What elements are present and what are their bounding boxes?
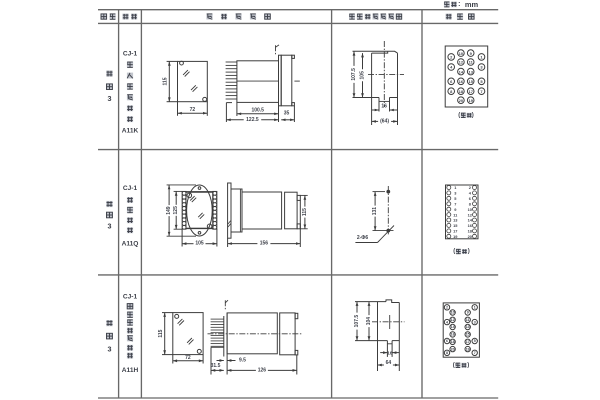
svg-text:A11K: A11K bbox=[122, 127, 139, 134]
svg-text:mm: mm bbox=[465, 0, 479, 9]
svg-text:19: 19 bbox=[466, 347, 470, 351]
svg-text:72: 72 bbox=[190, 107, 196, 113]
svg-text:3: 3 bbox=[108, 94, 112, 103]
svg-text:17: 17 bbox=[453, 229, 457, 234]
svg-text:131: 131 bbox=[372, 207, 378, 216]
svg-text:64: 64 bbox=[386, 360, 392, 366]
svg-text:16: 16 bbox=[459, 79, 464, 84]
svg-text:122.5: 122.5 bbox=[246, 117, 259, 123]
svg-text:(64): (64) bbox=[380, 118, 389, 124]
svg-text:10: 10 bbox=[459, 51, 464, 56]
svg-text::: : bbox=[458, 1, 460, 8]
svg-text:2-Φ6: 2-Φ6 bbox=[357, 235, 369, 241]
svg-text:100.5: 100.5 bbox=[251, 108, 264, 114]
svg-text:19: 19 bbox=[468, 98, 473, 103]
svg-text:20: 20 bbox=[468, 234, 472, 239]
svg-text:1: 1 bbox=[474, 306, 476, 310]
svg-text:20: 20 bbox=[451, 347, 455, 351]
svg-text:): ) bbox=[467, 362, 469, 368]
svg-text:6: 6 bbox=[446, 339, 448, 343]
svg-text:A11H: A11H bbox=[122, 367, 139, 374]
svg-text:16: 16 bbox=[387, 350, 393, 355]
svg-text:7: 7 bbox=[454, 202, 456, 207]
svg-text:107.5: 107.5 bbox=[354, 315, 360, 328]
svg-text:3: 3 bbox=[108, 344, 112, 353]
svg-text:15: 15 bbox=[466, 333, 470, 337]
svg-text:9: 9 bbox=[467, 311, 469, 315]
svg-text:): ) bbox=[472, 112, 474, 118]
svg-text:CJ-1: CJ-1 bbox=[123, 50, 138, 57]
svg-text:(: ( bbox=[453, 249, 455, 255]
svg-text:105: 105 bbox=[360, 71, 366, 80]
svg-text:10: 10 bbox=[451, 311, 455, 315]
svg-text:13: 13 bbox=[468, 69, 473, 74]
svg-text:10: 10 bbox=[468, 207, 472, 212]
svg-text:72: 72 bbox=[185, 355, 191, 361]
svg-text:12: 12 bbox=[451, 318, 455, 322]
svg-text:126: 126 bbox=[258, 367, 267, 373]
svg-text:13: 13 bbox=[466, 325, 470, 329]
svg-text:156: 156 bbox=[260, 241, 269, 247]
svg-text:14: 14 bbox=[451, 325, 455, 329]
svg-text:18: 18 bbox=[459, 89, 464, 94]
svg-text:(: ( bbox=[453, 362, 455, 368]
svg-text:7: 7 bbox=[474, 351, 476, 355]
svg-text:17: 17 bbox=[466, 340, 470, 344]
svg-text:104: 104 bbox=[366, 317, 372, 326]
svg-text:107.5: 107.5 bbox=[351, 68, 357, 81]
svg-text:9.5: 9.5 bbox=[239, 358, 246, 364]
svg-text:CJ-1: CJ-1 bbox=[123, 185, 138, 192]
svg-text:3: 3 bbox=[108, 222, 112, 231]
svg-text:3: 3 bbox=[474, 320, 476, 324]
svg-text:(: ( bbox=[458, 112, 460, 118]
svg-text:115: 115 bbox=[302, 208, 308, 216]
svg-text:149: 149 bbox=[166, 206, 172, 215]
svg-text:18: 18 bbox=[451, 340, 455, 344]
svg-text:105: 105 bbox=[195, 241, 204, 247]
svg-text:4: 4 bbox=[446, 320, 448, 324]
svg-text:11: 11 bbox=[466, 318, 470, 322]
svg-text:A11Q: A11Q bbox=[122, 240, 139, 247]
svg-text:16: 16 bbox=[451, 333, 455, 337]
svg-text:14: 14 bbox=[459, 69, 464, 74]
svg-text:2: 2 bbox=[446, 306, 448, 310]
svg-text:5: 5 bbox=[474, 339, 476, 343]
svg-text:17: 17 bbox=[468, 89, 473, 94]
svg-text:115: 115 bbox=[163, 77, 169, 85]
svg-text:15: 15 bbox=[468, 79, 473, 84]
svg-text:12: 12 bbox=[459, 60, 464, 65]
svg-text:125: 125 bbox=[173, 206, 179, 215]
svg-text:115: 115 bbox=[158, 329, 164, 337]
svg-text:): ) bbox=[468, 249, 470, 255]
svg-text:35: 35 bbox=[284, 110, 290, 116]
svg-text:8: 8 bbox=[446, 351, 448, 355]
svg-text:CJ-1: CJ-1 bbox=[123, 293, 138, 300]
svg-text:16: 16 bbox=[381, 103, 387, 109]
svg-text:20: 20 bbox=[459, 98, 464, 103]
svg-text:31.5: 31.5 bbox=[211, 363, 221, 369]
